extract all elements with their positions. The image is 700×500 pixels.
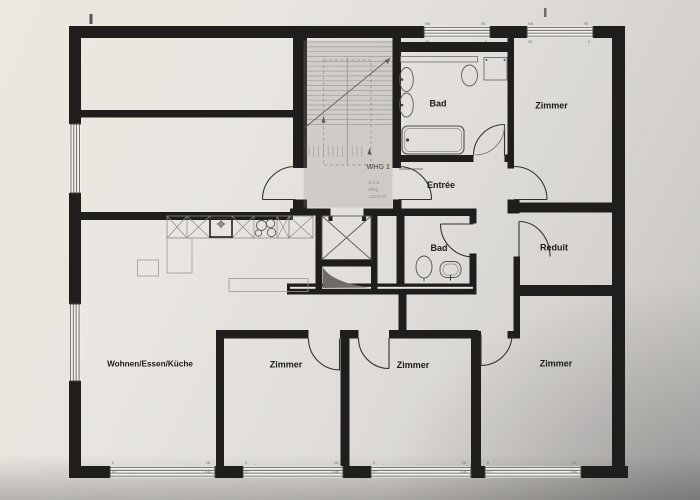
svg-text:Wohnen/Essen/Küche: Wohnen/Essen/Küche (107, 360, 193, 369)
svg-text:110.0 m²: 110.0 m² (369, 194, 388, 199)
svg-text:KAF: KAF (461, 471, 467, 475)
svg-text:F2: F2 (487, 471, 491, 475)
svg-text:Bad: Bad (429, 99, 446, 109)
svg-text:Zimmer: Zimmer (270, 360, 303, 370)
svg-text:KAF: KAF (205, 471, 211, 475)
svg-text:Whg: Whg (369, 187, 379, 192)
svg-text:Bad: Bad (430, 243, 447, 253)
svg-text:F2: F2 (373, 471, 377, 475)
svg-text:Zimmer: Zimmer (540, 359, 573, 369)
svg-text:F2: F2 (245, 471, 249, 475)
svg-text:Zimmer: Zimmer (535, 101, 568, 111)
svg-text:KAF: KAF (571, 471, 577, 475)
svg-text:KAF: KAF (333, 471, 339, 475)
svg-text:Reduit: Reduit (540, 243, 568, 253)
svg-text:5.5 Z: 5.5 Z (369, 180, 380, 185)
svg-text:FB: FB (481, 22, 485, 26)
svg-text:Entrée: Entrée (427, 180, 455, 190)
svg-text:WHG 1: WHG 1 (367, 162, 391, 171)
svg-text:FB: FB (584, 22, 588, 26)
svg-text:Zimmer: Zimmer (397, 360, 430, 370)
svg-text:KW: KW (528, 22, 533, 26)
svg-text:F2: F2 (112, 471, 116, 475)
svg-text:KW: KW (425, 22, 430, 26)
